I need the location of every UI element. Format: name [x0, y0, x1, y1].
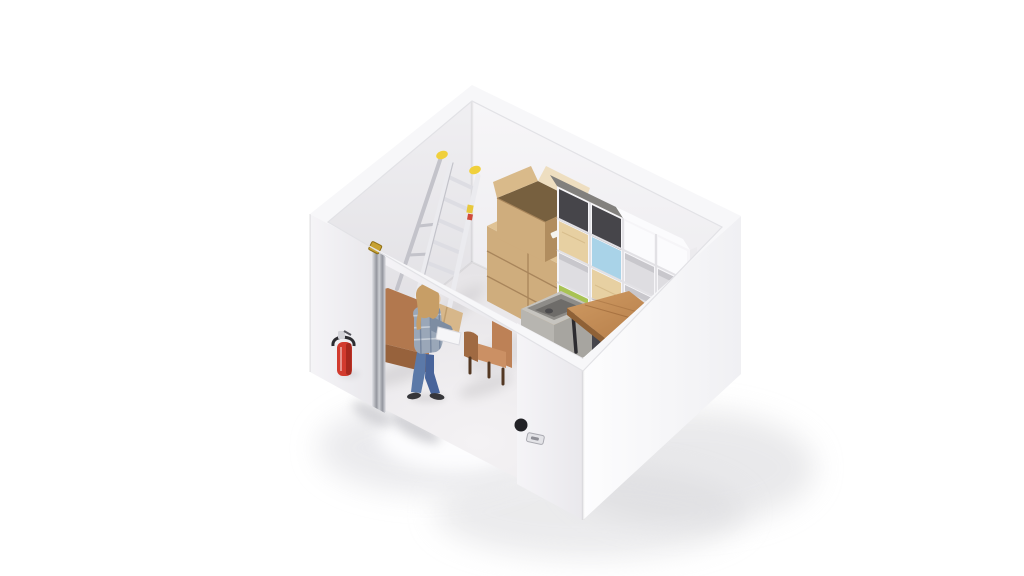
scene-canvas: Isometric 3D render of a self-storage un…	[0, 0, 1024, 576]
storage-unit-render: Isometric 3D render of a self-storage un…	[0, 0, 1024, 576]
ladder-warning-sticker	[467, 214, 473, 221]
extinguisher-handle	[338, 331, 345, 339]
trough-contents	[545, 309, 553, 314]
extinguisher-body-shade	[346, 343, 352, 375]
door-chrome-edge	[372, 249, 385, 413]
lock-circle	[515, 419, 528, 432]
